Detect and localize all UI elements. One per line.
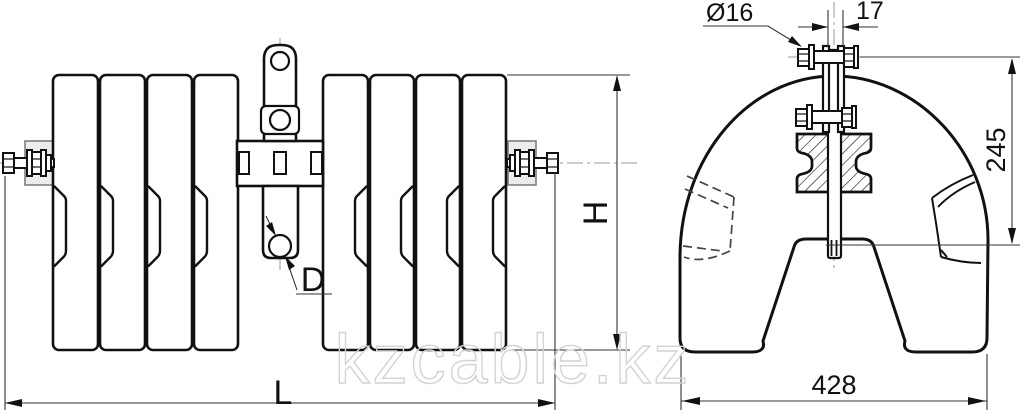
side-view: Ø16 17 245 428 [680,0,1020,410]
dim-label-428: 428 [811,370,856,400]
nut [842,108,852,127]
bolt-head [798,49,809,66]
callout-bolt-diameter [703,26,802,47]
arrowhead [1008,58,1016,74]
watermark-text: kzcable.kz [335,320,692,398]
weight-disc [462,75,506,350]
weight-disc [370,75,414,350]
bolt-shaft [14,158,27,168]
bolt-head [547,153,558,173]
bolt-assembly-left [3,150,54,176]
nut [520,152,529,174]
arrowhead [1008,228,1016,244]
leader-line [703,26,799,45]
damper-technical-drawing: H L D [0,0,1024,418]
collar-tip [51,159,54,167]
bracket-slot [239,152,249,174]
arrowhead [812,23,828,31]
weight-disc [323,75,368,350]
bolt-head [3,153,14,173]
hanger-hole-top [271,52,289,70]
bolt-assembly-right [507,150,558,176]
bolt-head [796,109,807,126]
drawing-canvas: H L D [0,0,1024,418]
nut [32,152,41,174]
weight-discs-right [323,75,506,350]
washer [852,106,856,128]
weight-disc [53,75,98,350]
dim-label-bolt-diameter: Ø16 [706,0,753,27]
bolt-shaft [534,158,547,168]
arrowhead [538,399,555,407]
dim-label-H: H [577,201,615,226]
arrowhead [682,397,700,405]
washer [854,46,858,68]
dim-label-245: 245 [981,127,1011,172]
arrowhead [968,397,986,405]
weight-disc [416,75,460,350]
bracket-slot [274,152,286,174]
bracket-slot [311,152,322,174]
weight-discs-left [53,75,238,350]
dim-label-17: 17 [856,0,884,25]
arrowhead [613,75,621,91]
hole-d [269,235,291,257]
arrowhead [788,36,802,47]
hanger-hole-middle [270,110,290,130]
arrowhead [5,399,22,407]
nut [844,48,854,67]
weight-disc [194,75,238,350]
collar-tip [507,159,510,167]
dim-label-L: L [274,374,293,412]
washer [809,45,814,69]
dim-label-D: D [301,261,326,299]
weight-disc [100,75,145,350]
weight-disc [147,75,192,350]
washer [807,105,812,129]
